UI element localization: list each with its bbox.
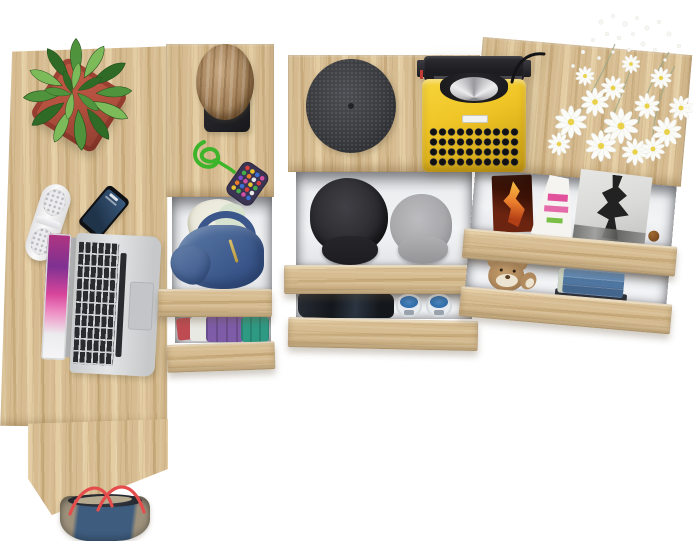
- sneaker-heel: [434, 310, 444, 315]
- product-photo-stage: [0, 0, 700, 541]
- magazine-title-block: [548, 194, 568, 202]
- brand-label: [462, 115, 488, 123]
- cap-button: [348, 103, 354, 109]
- speaker-grille: [40, 186, 69, 218]
- laptop: [40, 231, 161, 378]
- sneaker-upper: [400, 296, 418, 308]
- bead-keychain: [188, 132, 274, 208]
- chest-left: [166, 42, 276, 374]
- small-brown-ball: [648, 230, 660, 242]
- typewriter: [420, 46, 532, 176]
- flat-cap: [306, 59, 396, 153]
- beaded-pouch: [224, 160, 270, 208]
- plant-leaves: [12, 32, 146, 156]
- flame-artwork: [500, 181, 526, 228]
- chest-center-lower-drawer-opening: [296, 292, 472, 319]
- typebar-fan: [450, 77, 498, 101]
- chest-left-drawer-front-1: [158, 289, 272, 317]
- typewriter-keys: [429, 127, 519, 167]
- folded-teal-clothes: [241, 317, 269, 342]
- chest-left-upper-drawer-opening: [172, 197, 272, 293]
- typewriter-body: [422, 79, 526, 172]
- leaf-cluster: [23, 38, 132, 150]
- magazine-flame-cover: [492, 175, 534, 233]
- chest-center-drawer-front-1: [284, 265, 484, 294]
- folded-purple-clothes: [206, 316, 244, 342]
- sneaker-heel: [404, 310, 414, 315]
- laptop-keyboard: [73, 242, 119, 366]
- keychain-cord: [216, 160, 234, 172]
- carriage-return-lever: [508, 46, 548, 86]
- cork-stool: [196, 44, 254, 120]
- chest-center-upper-drawer-opening: [296, 172, 472, 267]
- chest-left-lower-drawer-opening: [175, 315, 271, 343]
- blue-sneaker: [426, 294, 452, 317]
- magazine-fashion-cover: [573, 169, 653, 247]
- sneaker-upper: [430, 296, 448, 308]
- magazine-title-block: [546, 217, 562, 223]
- black-cap-brim: [322, 236, 378, 265]
- speaker-band: [35, 215, 62, 230]
- ribbon-lever: [420, 70, 423, 79]
- folded-dark-clothes: [298, 293, 394, 318]
- blue-sneaker: [396, 294, 422, 317]
- chest-left-drawer-front-2: [167, 341, 276, 373]
- keychain-cord: [195, 142, 218, 167]
- bag-straps: [54, 474, 156, 524]
- daisy-bouquet: [543, 4, 697, 174]
- laptop-trackpad: [128, 281, 154, 330]
- gray-cap-brim: [398, 236, 448, 264]
- magazine-title-block: [544, 205, 568, 213]
- tote-bag: [54, 474, 156, 541]
- chest-center-drawer-front-2: [288, 317, 479, 351]
- laptop-body: [69, 233, 161, 377]
